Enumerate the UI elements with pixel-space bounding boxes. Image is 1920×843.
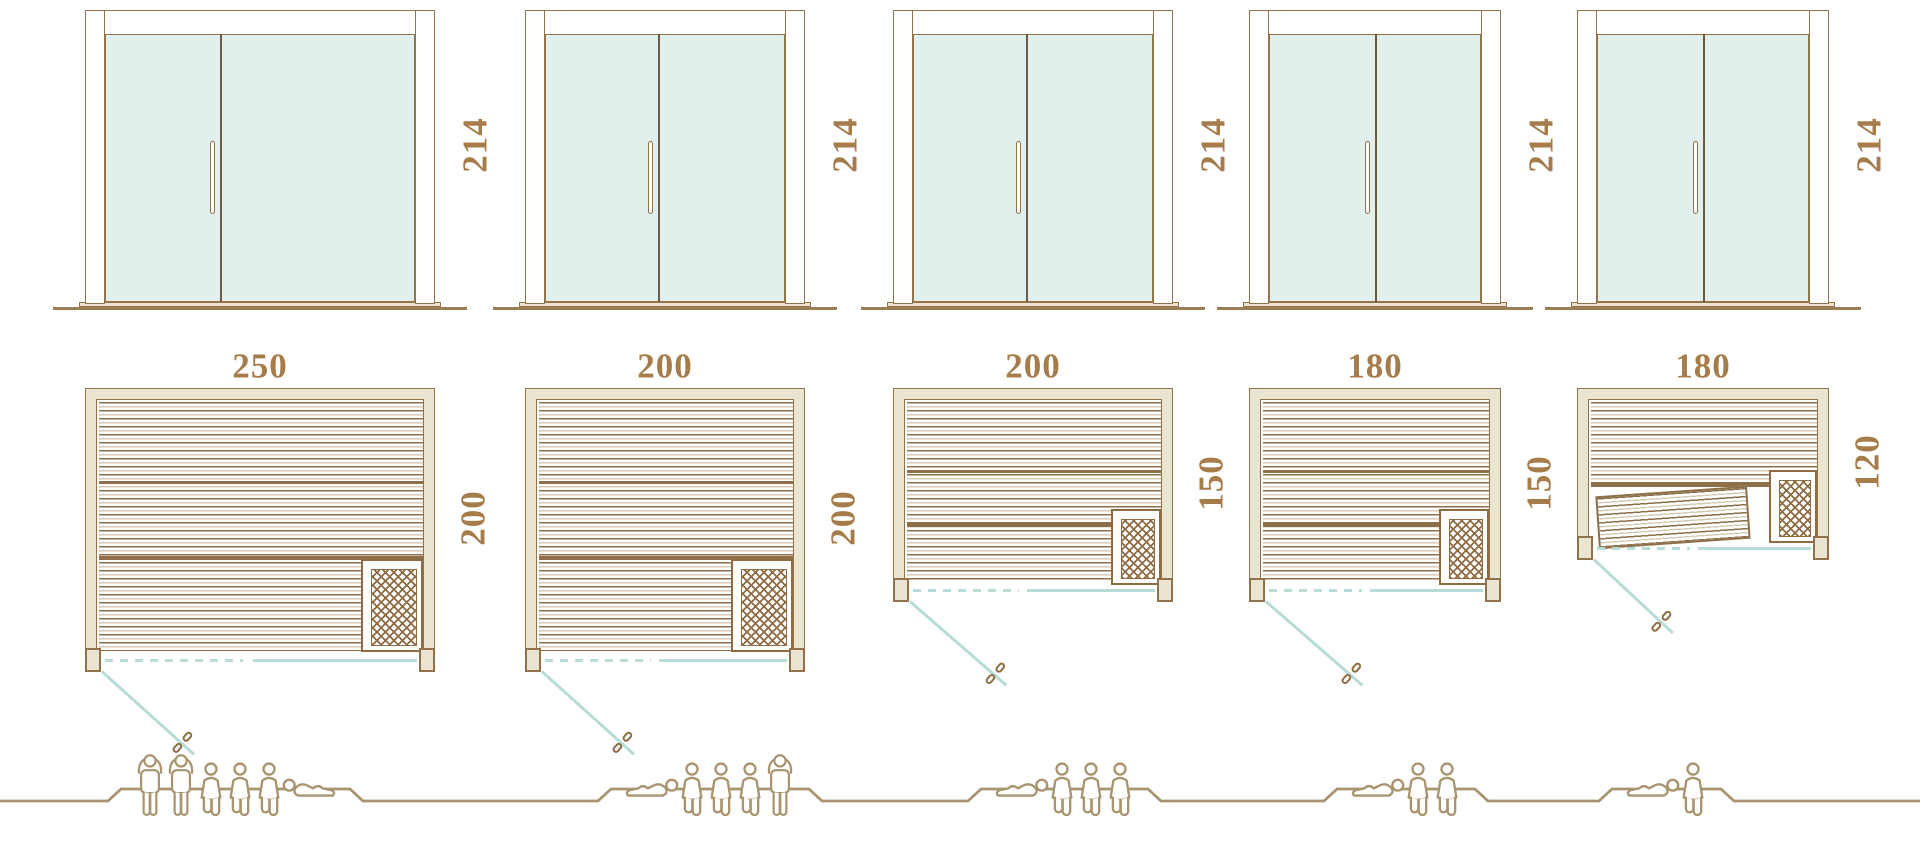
person-figure (623, 776, 679, 798)
heater-icon (361, 559, 423, 652)
front-glass-solid-line (1027, 589, 1155, 592)
door-handle-bar (181, 731, 194, 744)
person-seated-icon (195, 761, 227, 818)
person-figure (734, 761, 766, 818)
door-pull-handle (210, 141, 215, 214)
person-figure (1402, 761, 1434, 818)
door-handle-bar (1650, 620, 1663, 633)
person-reclining-icon (1349, 776, 1405, 798)
person-reclining-icon (993, 776, 1049, 798)
person-standing-icon (763, 753, 797, 818)
door-post-right (785, 10, 805, 304)
person-figure (1431, 761, 1463, 818)
door-handle-bar (621, 731, 634, 744)
door-sill (1571, 302, 1835, 307)
person-figure (1075, 761, 1107, 818)
corner-post-left (893, 578, 909, 602)
person-reclining-icon (623, 776, 679, 798)
person-seated-icon (1431, 761, 1463, 818)
person-figure (164, 753, 198, 818)
door-elevation (893, 10, 1173, 308)
front-glass-solid-line (659, 659, 787, 662)
door-ground-line (861, 307, 1205, 310)
people-group (133, 752, 348, 818)
corner-post-left (85, 648, 101, 672)
front-glass-dashed-line (105, 659, 243, 662)
person-figure (763, 753, 797, 818)
person-figure (1046, 761, 1078, 818)
bench-edge-line (907, 470, 1161, 474)
door-pull-handle (1016, 141, 1021, 214)
corner-post-left (1577, 536, 1593, 560)
door-glass-divider (1375, 34, 1377, 302)
person-figure (676, 761, 708, 818)
person-figure (253, 761, 285, 818)
floor-plan (1249, 388, 1501, 598)
door-post-right (1809, 10, 1829, 304)
person-seated-icon (734, 761, 766, 818)
door-pull-handle (648, 141, 653, 214)
bench-edge-line (99, 481, 423, 485)
door-handle-bar (611, 742, 624, 755)
door-post-left (85, 10, 105, 304)
door-glass-divider (1703, 34, 1705, 302)
door-handle-bar (1340, 673, 1352, 686)
door-glass-divider (220, 34, 222, 302)
door-elevation (85, 10, 435, 308)
sauna-units: 214250200 214200200 (0, 0, 1920, 843)
person-seated-icon (1677, 761, 1709, 818)
door-sill (519, 302, 811, 307)
plan-width-label: 250 (232, 349, 288, 384)
plan-width-label: 180 (1675, 349, 1731, 384)
person-seated-icon (1075, 761, 1107, 818)
door-handle-bar (984, 673, 996, 686)
bench-edge-line (539, 481, 793, 485)
person-figure (1677, 761, 1709, 818)
person-figure (224, 761, 256, 818)
front-glass-solid-line (253, 659, 417, 662)
person-seated-icon (705, 761, 737, 818)
door-height-label: 214 (1852, 117, 1887, 173)
front-glass-dashed-line (545, 659, 651, 662)
door-elevation (1249, 10, 1501, 308)
door-elevation (525, 10, 805, 308)
sauna-size-diagram: 214250200 214200200 (0, 0, 1920, 843)
heater-coil (1449, 519, 1483, 579)
door-pull-handle (1693, 141, 1698, 214)
person-figure (993, 776, 1049, 798)
door-glass-divider (1026, 34, 1028, 302)
front-glass-solid-line (1698, 547, 1811, 550)
door-sill (79, 302, 441, 307)
floor-plan (525, 388, 805, 668)
heater-icon (1111, 509, 1161, 585)
front-glass-dashed-line (913, 589, 1019, 592)
person-seated-icon (676, 761, 708, 818)
door-post-left (893, 10, 913, 304)
corner-post-right (419, 648, 435, 672)
person-figure (195, 761, 227, 818)
people-group (623, 752, 807, 818)
door-handle-bar (1350, 662, 1362, 675)
door-lintel (103, 10, 417, 35)
door-glass-panel (105, 34, 415, 302)
plan-width-label: 200 (637, 349, 693, 384)
front-glass-dashed-line (1269, 589, 1362, 592)
person-figure (1104, 761, 1136, 818)
person-standing-icon (164, 753, 198, 818)
tilted-bench (1595, 486, 1750, 550)
heater-coil (1779, 480, 1811, 537)
door-lintel (543, 10, 787, 35)
person-figure (1624, 776, 1680, 798)
door-handle-bar (994, 662, 1006, 675)
door-ground-line (493, 307, 837, 310)
person-figure (133, 753, 167, 818)
floor-plan (1577, 388, 1829, 556)
front-glass-solid-line (1370, 589, 1483, 592)
heater-icon (731, 559, 793, 652)
person-reclining-icon (282, 776, 338, 798)
plan-depth-label: 120 (1850, 434, 1885, 490)
bench-edge-line (1263, 470, 1489, 474)
door-glass-panel (913, 34, 1153, 302)
door-post-right (415, 10, 435, 304)
door-sill (887, 302, 1179, 307)
door-ground-line (1545, 307, 1861, 310)
door-lintel (1595, 10, 1811, 35)
door-pull-handle (1365, 141, 1370, 214)
person-figure (282, 776, 338, 798)
door-lintel (911, 10, 1155, 35)
heater-icon (1439, 509, 1489, 585)
person-seated-icon (1046, 761, 1078, 818)
door-post-left (1577, 10, 1597, 304)
plan-width-label: 200 (1005, 349, 1061, 384)
door-ground-line (1217, 307, 1533, 310)
floor-plan (893, 388, 1173, 598)
floor-plan (85, 388, 435, 668)
door-elevation (1577, 10, 1829, 308)
people-group (1349, 752, 1473, 818)
door-glass-panel (545, 34, 785, 302)
door-post-left (525, 10, 545, 304)
person-seated-icon (1104, 761, 1136, 818)
front-glass-dashed-line (1597, 547, 1690, 550)
door-post-left (1249, 10, 1269, 304)
people-group (993, 752, 1146, 818)
door-sill (1243, 302, 1507, 307)
sauna-unit: 214180120 (1487, 0, 1919, 843)
person-seated-icon (253, 761, 285, 818)
heater-icon (1769, 470, 1817, 543)
person-standing-icon (133, 753, 167, 818)
door-handle-bar (1660, 609, 1673, 622)
door-ground-line (53, 307, 467, 310)
door-glass-divider (658, 34, 660, 302)
person-seated-icon (224, 761, 256, 818)
corner-post-right (1813, 536, 1829, 560)
people-group (1624, 752, 1719, 818)
corner-post-left (1249, 578, 1265, 602)
plan-width-label: 180 (1347, 349, 1403, 384)
person-figure (1349, 776, 1405, 798)
heater-coil (371, 569, 417, 646)
heater-coil (741, 569, 787, 646)
person-figure (705, 761, 737, 818)
person-seated-icon (1402, 761, 1434, 818)
corner-post-left (525, 648, 541, 672)
door-lintel (1267, 10, 1483, 35)
person-reclining-icon (1624, 776, 1680, 798)
heater-coil (1121, 519, 1155, 579)
